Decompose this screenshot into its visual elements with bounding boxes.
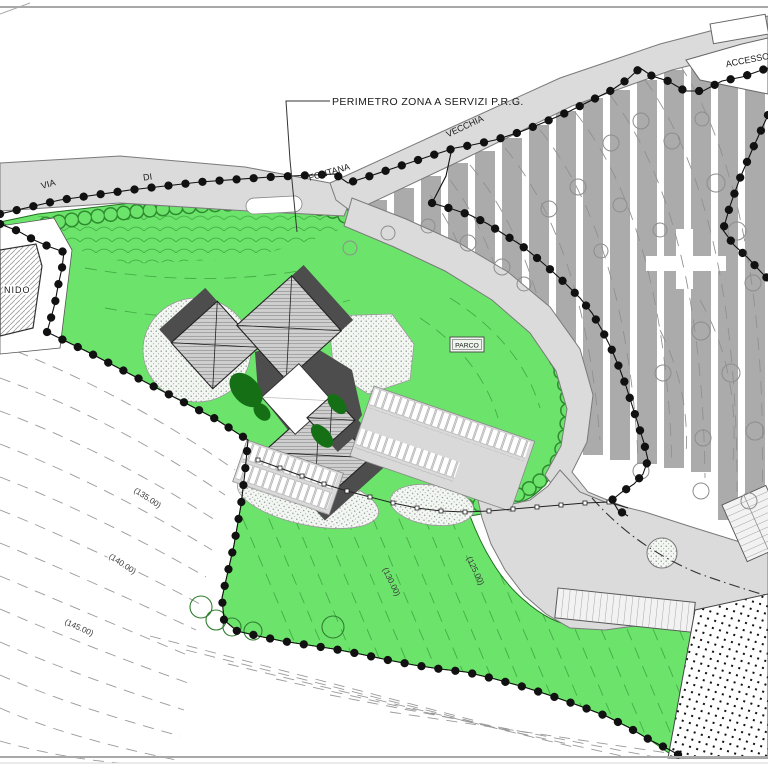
parco-label: PARCO [455,343,479,350]
street-label-di: DI [142,171,152,182]
parco-label-box: PARCO [450,337,484,352]
callout-label: PERIMETRO ZONA A SERVIZI P.R.G. [332,96,524,108]
site-plan-canvas: PERIMETRO ZONA A SERVIZI P.R.G. VIA DI F… [0,0,768,768]
site-plan-sheet: PERIMETRO ZONA A SERVIZI P.R.G. VIA DI F… [0,0,768,768]
terrace-path-cross-v [676,229,693,289]
round-planter [647,538,677,568]
nido-label: NIDO [4,285,31,295]
